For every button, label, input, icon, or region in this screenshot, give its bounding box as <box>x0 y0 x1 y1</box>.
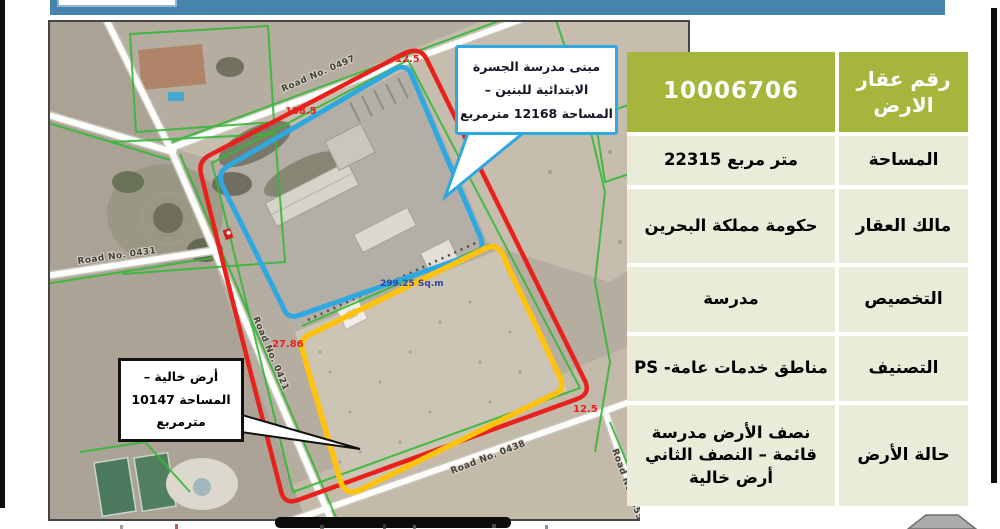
slide-top-bar <box>50 0 945 15</box>
property-number-label: رقم عقار الارض <box>839 52 968 132</box>
school-callout-line3: المساحة 12168 مترمربع <box>458 102 615 125</box>
window-edge-right <box>991 8 997 529</box>
slide-screenshot: Road No. 0497 Road No. 0431 Road No. 042… <box>0 0 1000 529</box>
measure-12-5-north: 12.5 <box>395 54 420 65</box>
area-note-sqm: 299.25 Sq.m <box>380 279 444 289</box>
measure-12-5-east: 12.5 <box>573 404 598 415</box>
measure-108-5: 108.5 <box>285 106 317 117</box>
vacant-callout-line1: أرض خالية – <box>121 366 241 389</box>
land-status-label: حالة الأرض <box>839 405 968 506</box>
owner-label: مالك العقار <box>839 189 968 263</box>
cutoff-text-fragment <box>413 525 416 529</box>
cutoff-text-fragment <box>175 524 178 529</box>
pentagon-shape <box>900 514 980 529</box>
villa-pool-round <box>193 478 211 496</box>
cutoff-text-fragment <box>492 524 496 528</box>
property-info-table: 10006706 رقم عقار الارض 22315 متر مربع ا… <box>627 52 968 506</box>
cutoff-text-fragment <box>120 525 123 529</box>
tree-blob <box>216 57 244 77</box>
land-status-value: نصف الأرض مدرسة قائمة – النصف الثاني أرض… <box>627 405 835 506</box>
area-value: 22315 متر مربع <box>627 136 835 185</box>
tree-blob <box>112 171 144 193</box>
vacant-callout-line2: المساحة 10147 <box>121 389 241 412</box>
area-label: المساحة <box>839 136 968 185</box>
cutoff-text-fragment <box>320 525 324 529</box>
school-callout-line2: الابتدائية للبنين – <box>458 78 615 101</box>
vacant-callout-line3: مترمربع <box>121 411 241 434</box>
school-callout-line1: مبنى مدرسة الجسرة <box>458 55 615 78</box>
classification-label: التصنيف <box>839 336 968 401</box>
cutoff-textbox <box>57 0 177 7</box>
villa-pool <box>168 92 184 101</box>
vacant-land-callout: أرض خالية – المساحة 10147 مترمربع <box>118 358 244 442</box>
school-callout: مبنى مدرسة الجسرة الابتدائية للبنين – ال… <box>455 45 618 135</box>
classification-value: مناطق خدمات عامة- PS <box>627 336 835 401</box>
window-edge-left <box>0 0 5 508</box>
cutoff-text-fragment <box>545 525 548 529</box>
owner-value: حكومة مملكة البحرين <box>627 189 835 263</box>
villa-roof <box>138 44 206 90</box>
allocation-value: مدرسة <box>627 267 835 332</box>
measure-27-86: 27.86 <box>272 339 304 350</box>
bottom-black-bar <box>275 517 511 528</box>
tennis-court <box>94 458 136 517</box>
allocation-label: التخصيص <box>839 267 968 332</box>
park-circle <box>153 203 183 233</box>
cutoff-text-fragment <box>383 524 386 529</box>
property-number-value: 10006706 <box>627 52 835 132</box>
